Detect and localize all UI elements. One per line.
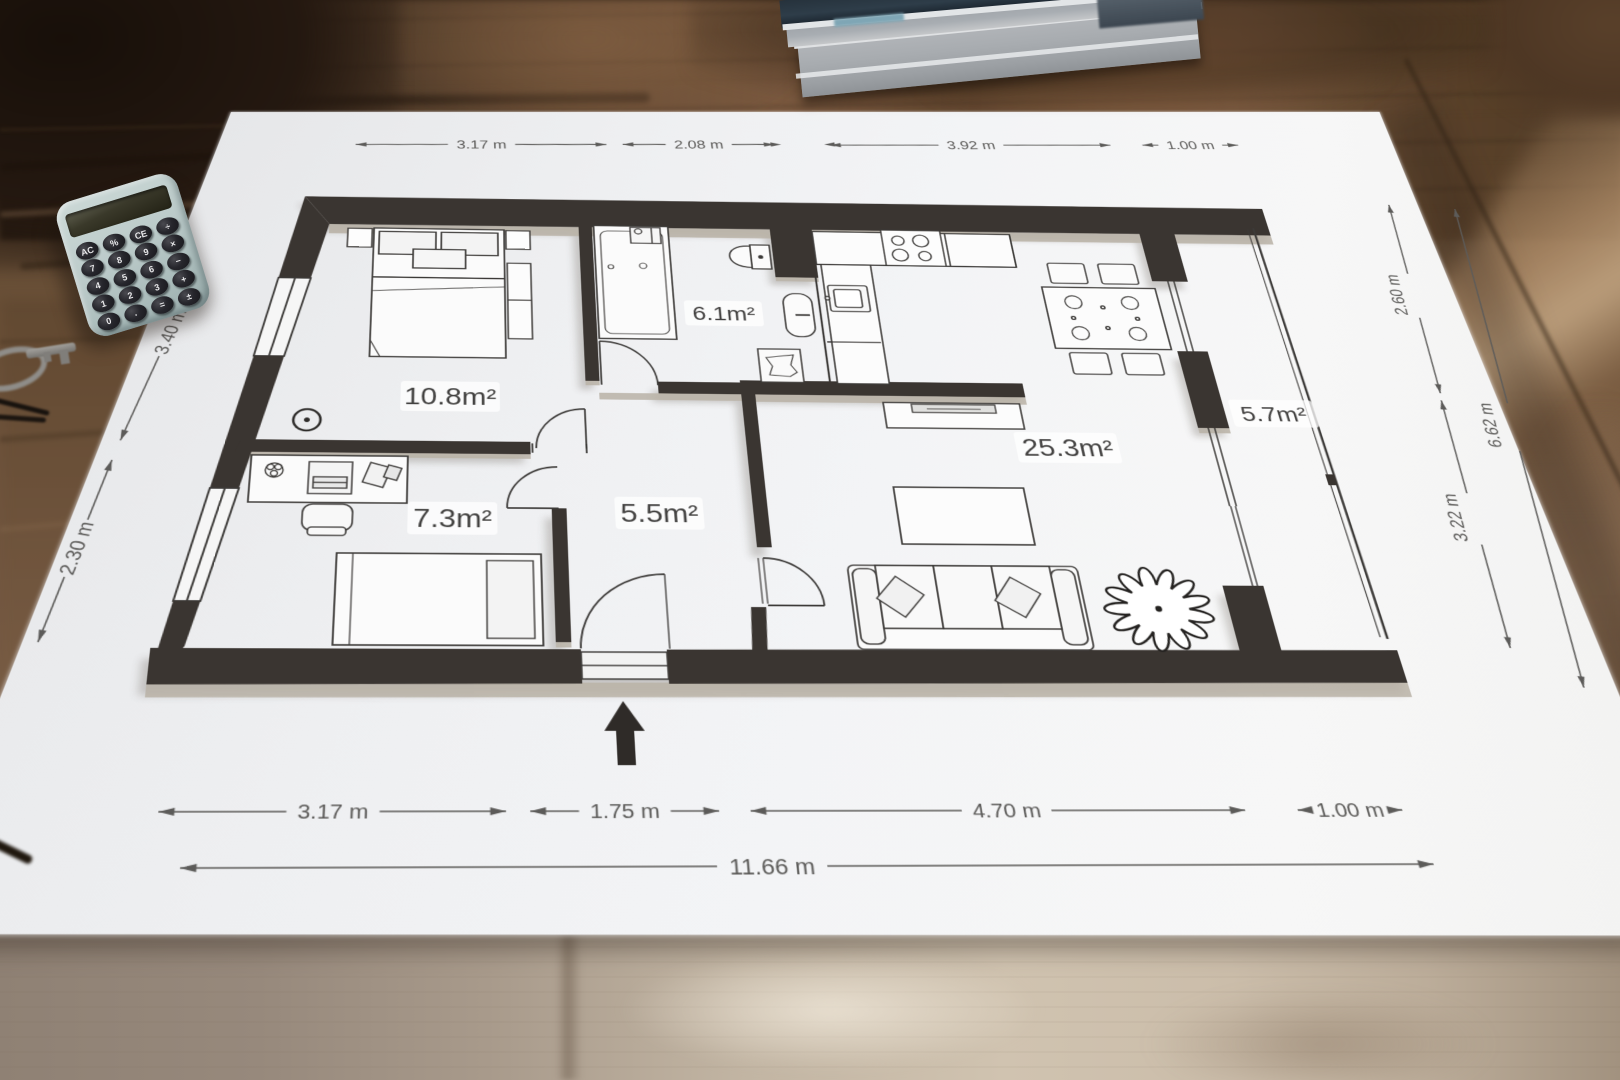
svg-text:3.22 m: 3.22 m bbox=[1439, 493, 1473, 542]
svg-text:2.60 m: 2.60 m bbox=[1382, 274, 1412, 316]
svg-text:4.70 m: 4.70 m bbox=[971, 800, 1044, 823]
svg-text:5.5m²: 5.5m² bbox=[620, 501, 700, 529]
svg-text:1.00 m: 1.00 m bbox=[1165, 140, 1217, 153]
svg-text:3.17 m: 3.17 m bbox=[297, 801, 369, 825]
svg-text:2.30 m: 2.30 m bbox=[55, 520, 100, 577]
svg-text:10.8m²: 10.8m² bbox=[404, 385, 497, 411]
svg-text:11.66 m: 11.66 m bbox=[728, 854, 816, 880]
svg-text:6.62 m: 6.62 m bbox=[1475, 402, 1507, 449]
svg-text:25.3m²: 25.3m² bbox=[1020, 436, 1116, 463]
svg-text:7.3m²: 7.3m² bbox=[413, 505, 493, 533]
svg-text:6.1m²: 6.1m² bbox=[692, 303, 757, 325]
svg-text:1.00 m: 1.00 m bbox=[1314, 799, 1388, 822]
svg-text:2.08 m: 2.08 m bbox=[673, 139, 724, 152]
svg-text:3.17 m: 3.17 m bbox=[456, 139, 507, 152]
svg-text:5.7m²: 5.7m² bbox=[1238, 403, 1310, 427]
svg-text:1.75 m: 1.75 m bbox=[589, 800, 660, 824]
svg-text:3.92 m: 3.92 m bbox=[946, 140, 997, 153]
